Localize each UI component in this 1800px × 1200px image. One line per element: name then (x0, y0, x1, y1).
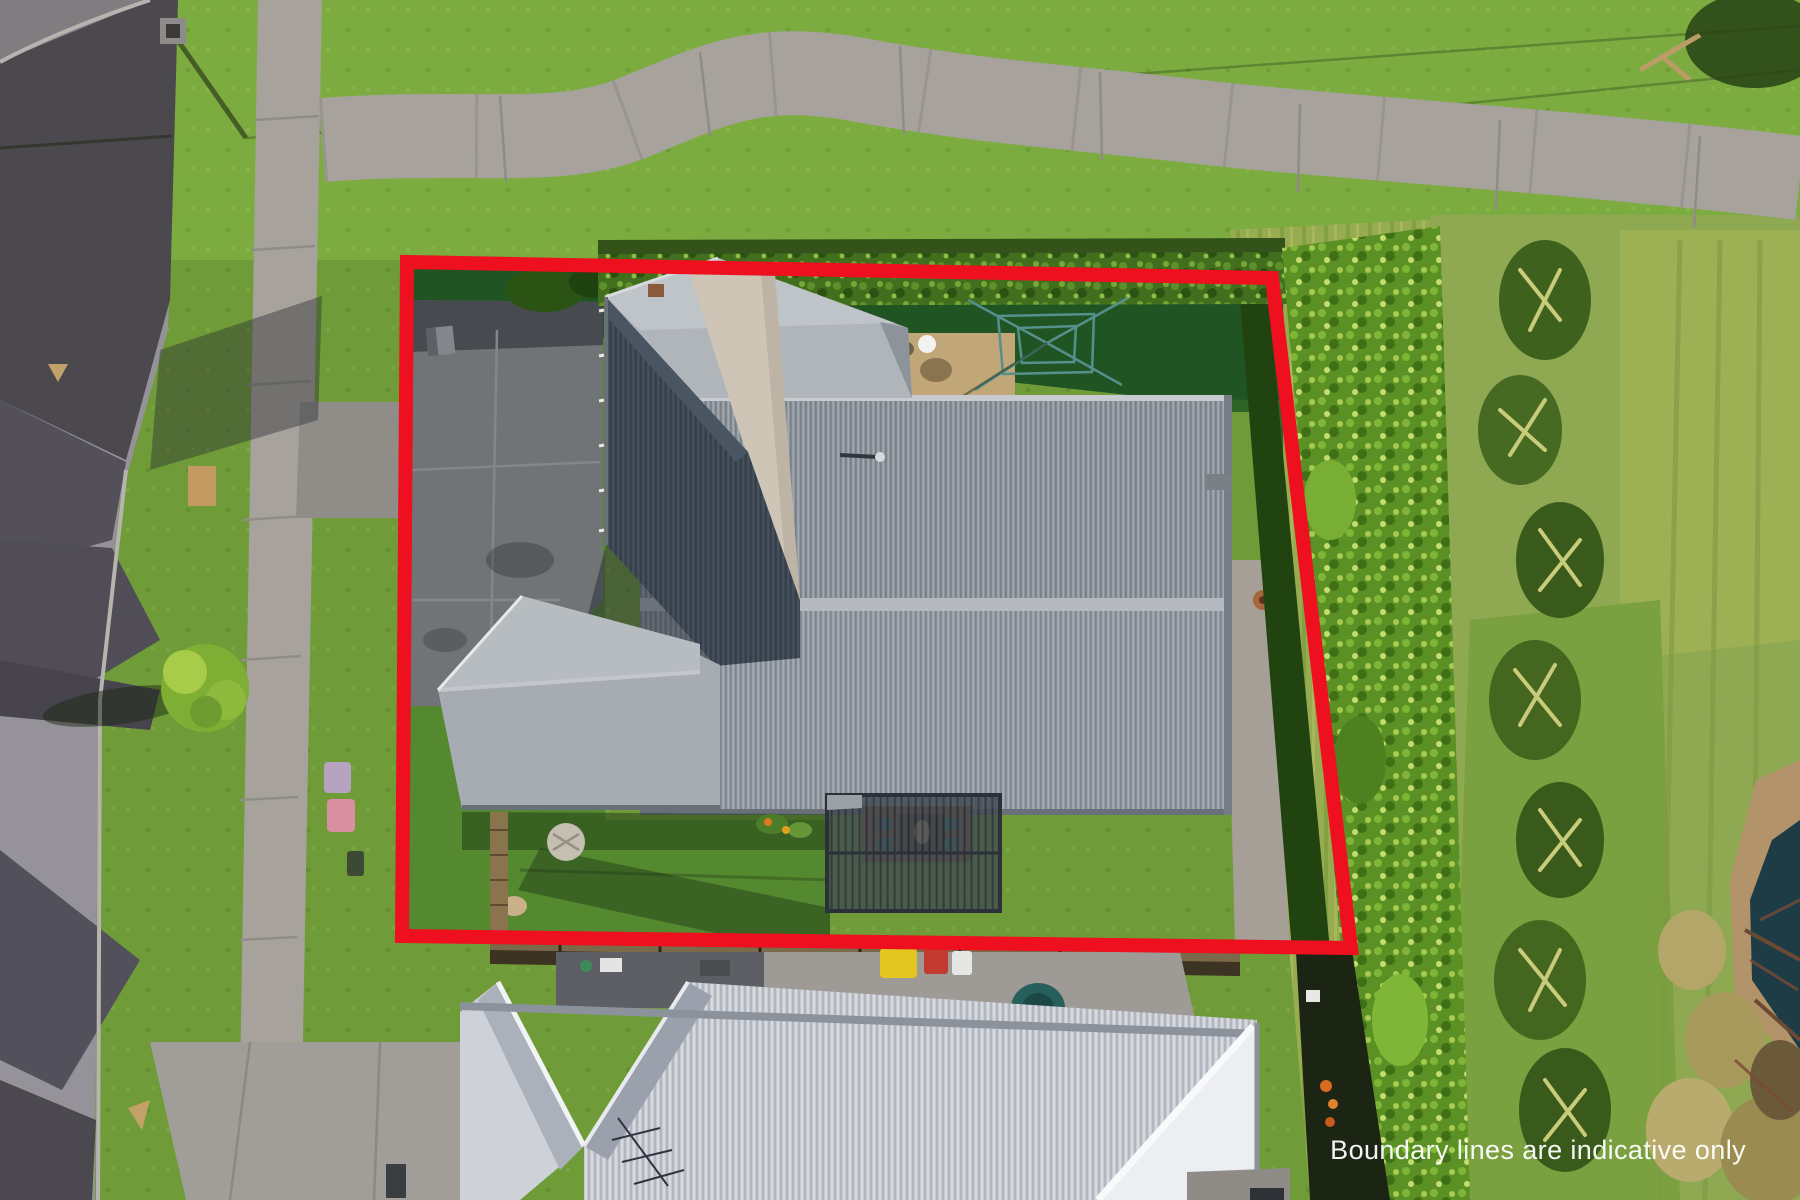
louvre-pergola (827, 795, 1000, 911)
disclaimer-text: Boundary lines are indicative only (1330, 1135, 1746, 1165)
photo-canvas: Boundary lines are indicative only (0, 0, 1800, 1200)
bin-red (924, 948, 948, 974)
timber-fence-west (490, 812, 508, 940)
bin-yellow (880, 948, 917, 978)
bin-white (952, 951, 972, 975)
neighbor-bin (386, 1164, 406, 1198)
aerial-property-photo: Boundary lines are indicative only (0, 0, 1800, 1200)
